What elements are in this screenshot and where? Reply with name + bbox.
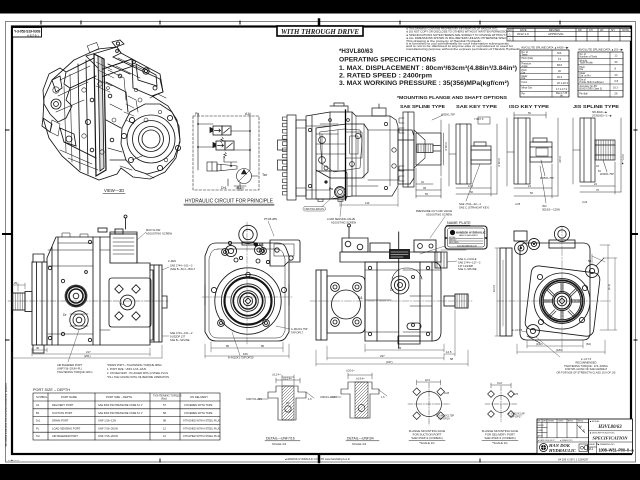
svg-text:PL: PL (36, 426, 40, 430)
svg-text:(184): (184) (556, 348, 563, 352)
svg-text:70: 70 (596, 188, 599, 192)
svg-text:Dr: Dr (63, 313, 67, 317)
svg-text:∅19 8¹⁵: ∅19 8¹⁵ (356, 377, 365, 381)
svg-text:57: 57 (163, 403, 166, 407)
svg-text:OPERATING SPECIFICATIONS: OPERATING SPECIFICATIONS (339, 58, 436, 64)
svg-text:MAX FLOW: MAX FLOW (146, 228, 161, 232)
svg-text:Number of Teeth: Number of Teeth (580, 55, 598, 58)
svg-text:■ DRAWING NO.: ■ DRAWING NO. (598, 443, 615, 446)
svg-text:www.handokhyd.co.kr: www.handokhyd.co.kr (457, 245, 477, 247)
svg-text:(347): (347) (386, 360, 393, 364)
svg-text:∅(∅)—▶: ∅(∅)—▶ (621, 154, 625, 166)
svg-text:Pc: Pc (329, 187, 333, 191)
svg-text:12: 12 (163, 434, 166, 438)
svg-text:2–M20: 2–M20 (168, 259, 176, 263)
svg-text:FOR 5/8–11UNC OF SAE GRADE 8: FOR 5/8–11UNC OF SAE GRADE 8 (565, 367, 607, 371)
svg-text:PT1/8-28N: PT1/8-28N (264, 217, 277, 221)
svg-text:JIS SPLINE TYPE: JIS SPLINE TYPE (573, 104, 619, 109)
svg-text:DRWN: DRWN (538, 425, 544, 427)
svg-text:*FILL THE CASING WITH OIL BEFO: *FILL THE CASING WITH OIL BEFORE OPERATI… (107, 375, 169, 379)
svg-text:8–M12X1.75P DP20: 8–M12X1.75P DP20 (228, 356, 254, 360)
svg-text:B1603-1995 Class 3): B1603-1995 Class 3) (580, 87, 603, 90)
svg-text:COVERED WITH TAPE: COVERED WITH TAPE (184, 411, 213, 415)
svg-text:JIS B1603—1—▶: JIS B1603—1—▶ (592, 114, 613, 117)
svg-text:SAE J744—32—1: SAE J744—32—1 (459, 202, 481, 206)
svg-text:OR FOR M16 OF STRENGTH CLASS 1: OR FOR M16 OF STRENGTH CLASS 10.9 OF JIS (557, 371, 616, 375)
svg-text:17.1-17.3: 17.1-17.3 (556, 87, 568, 91)
svg-text:1008–W31–P00–0–A: 1008–W31–P00–0–A (599, 448, 634, 453)
svg-text:HYDRAULIC: HYDRAULIC (548, 448, 577, 453)
svg-text:1.6: 1.6 (381, 396, 385, 399)
svg-text:SCALE 4/1: SCALE 4/1 (352, 442, 367, 446)
svg-text:12.5: 12.5 (446, 350, 452, 354)
svg-text:HYDRAULIC CIRCUIT FOR PRINCIPL: HYDRAULIC CIRCUIT FOR PRINCIPLE (185, 199, 273, 205)
svg-text:3019/2—C25N: 3019/2—C25N (542, 208, 560, 212)
svg-text:3. MAX WORKING PRESSURE : 35(3: 3. MAX WORKING PRESSURE : 35(356)MPa(kgf… (339, 80, 509, 87)
svg-text:ADJUSTING SCREW: ADJUSTING SCREW (331, 220, 357, 224)
svg-text:AIR BLEEDER PORT: AIR BLEEDER PORT (52, 434, 78, 438)
svg-text:237: 237 (380, 354, 385, 358)
svg-text:12.5: 12.5 (468, 184, 474, 188)
svg-text:2. RATED SPEED : 2400rpm: 2. RATED SPEED : 2400rpm (339, 74, 432, 80)
svg-text:UNF3/4–16UN: UNF3/4–16UN (320, 396, 337, 399)
svg-text:TIGHTENING TORQUE 12Nm: TIGHTENING TORQUE 12Nm (57, 370, 92, 374)
svg-text:H-307-B 1: H-307-B 1 (27, 34, 39, 38)
svg-text:1.6: 1.6 (308, 398, 312, 401)
svg-text:CHKD: CHKD (558, 421, 564, 423)
svg-text:ATTACHED WITH A STEEL PLUG: ATTACHED WITH A STEEL PLUG (183, 435, 220, 438)
svg-text:H3VL80/63 1008-W31-P00-0-A SPE: H3VL80/63 1008-W31-P00-0-A SPECIFICATION… (5, 383, 8, 447)
svg-text:manufacturing purpose without: manufacturing purpose without the expres… (406, 48, 521, 51)
svg-text:48: 48 (423, 186, 426, 190)
svg-text:SAE J744—101—2: SAE J744—101—2 (170, 331, 193, 335)
svg-text:Teeth: Teeth (522, 53, 529, 56)
svg-text:UNF 7/16–20UN: UNF 7/16–20UN (98, 434, 118, 438)
svg-text:NAME PLATE: NAME PLATE (447, 221, 471, 225)
svg-text:SYMBOL: SYMBOL (36, 395, 48, 399)
svg-text:*DRAIN PORT—TIGHTENING TORQUE: *DRAIN PORT—TIGHTENING TORQUE 98Nm (107, 363, 162, 367)
svg-text:93: 93 (398, 346, 402, 350)
svg-text:Pc: Pc (195, 112, 199, 116)
svg-text:*SCALE 1/1: *SCALE 1/1 (419, 441, 435, 445)
svg-text:42: 42 (421, 180, 424, 184)
svg-text:Dia. at Pin: Dia. at Pin (580, 75, 592, 78)
svg-text:(162): (162) (536, 342, 543, 346)
svg-text:DELIVERY PORT: DELIVERY PORT (52, 403, 74, 407)
svg-text:SPECIFICATION: SPECIFICATION (592, 436, 628, 441)
svg-text:SAE 6000 PSI PRESSURE CODE 61: SAE 6000 PSI PRESSURE CODE 61 1" (98, 404, 143, 407)
svg-text:Minor Dia: Minor Dia (522, 87, 533, 90)
svg-text:7.96/7.9: 7.96/7.9 (474, 117, 484, 121)
svg-text:H3VL80/63: H3VL80/63 (597, 425, 622, 430)
svg-text:HANDOK MACHINERY: HANDOK MACHINERY (459, 234, 479, 237)
svg-text:TAP DP17: TAP DP17 (510, 416, 522, 419)
svg-text:Pin Ball: Pin Ball (580, 93, 589, 96)
svg-text:UNF7/16–20N: UNF7/16–20N (246, 398, 262, 401)
svg-text:VIEW—3D: VIEW—3D (104, 188, 124, 193)
svg-text:PORT SIZE – DEPTH: PORT SIZE – DEPTH (33, 388, 70, 392)
svg-text:UNF 1/16–12N: UNF 1/16–12N (98, 419, 116, 423)
svg-text:M8: M8 (259, 243, 264, 247)
svg-text:2–∅17.5: 2–∅17.5 (581, 357, 592, 361)
svg-text:W30X1.75P: W30X1.75P (441, 113, 455, 117)
svg-text:APPROVAL: APPROVAL (548, 32, 564, 36)
svg-text:0.8: 0.8 (615, 79, 619, 83)
svg-text:TAP DP17: TAP DP17 (291, 330, 304, 334)
svg-text:■ DESCRIPTION(TITLE): ■ DESCRIPTION(TITLE) (590, 432, 615, 435)
svg-text:● SCALE 1/2.5: ● SCALE 1/2.5 (560, 439, 573, 442)
svg-text:DR: DR (578, 29, 582, 32)
svg-text:AIR BLEEDER PORT: AIR BLEEDER PORT (57, 363, 82, 367)
svg-text:SAE C–SPLINE: SAE C–SPLINE (458, 267, 477, 271)
svg-text:4–M12X1.75P: 4–M12X1.75P (291, 327, 308, 331)
svg-text:WITH THROUGH DRIVE: WITH THROUGH DRIVE (281, 28, 359, 36)
svg-text:A1: A1 (36, 403, 40, 407)
svg-text:Dr1: Dr1 (221, 186, 227, 190)
svg-text:PRESSURE CUT-OFF VALVE: PRESSURE CUT-OFF VALVE (416, 209, 452, 213)
svg-text:*SCALE 1/1: *SCALE 1/1 (492, 441, 508, 445)
svg-text:103.5: 103.5 (492, 285, 496, 292)
svg-text:Pitch (Flat): Pitch (Flat) (522, 57, 534, 60)
svg-text:●HANDOK HYDRAULIC CO.,LTD www: ●HANDOK HYDRAULIC CO.,LTD www.handokhyd.… (285, 457, 350, 461)
svg-text:24: 24 (594, 182, 597, 186)
svg-text:∅25: ∅25 (513, 392, 519, 396)
svg-text:Tooth Profile: Tooth Profile (580, 62, 594, 65)
svg-text:ISO KEY TYPE: ISO KEY TYPE (509, 104, 549, 109)
svg-text:DRWN: DRWN (548, 421, 554, 423)
svg-text:∅12 4¹⁵: ∅12 4¹⁵ (283, 377, 292, 381)
svg-text:SAE=J518=1 (CODE61): SAE=J518=1 (CODE61) (484, 436, 515, 440)
svg-text:SAE SPLINE TYPE: SAE SPLINE TYPE (400, 104, 445, 109)
svg-text:Dr1: Dr1 (36, 419, 41, 423)
svg-text:A4 209 X 297 | 1 150X297: A4 209 X 297 | 1 150X297 (558, 458, 589, 462)
svg-text:ISO: ISO (542, 204, 547, 208)
svg-text:44: 44 (596, 164, 599, 168)
svg-text:∅20.6⁵⁵: ∅20.6⁵⁵ (346, 369, 355, 373)
svg-text:(Nm): (Nm) (161, 397, 167, 401)
svg-text:(62): (62) (586, 342, 591, 346)
svg-text:45°: 45° (286, 402, 290, 405)
svg-text:A1: A1 (120, 301, 126, 306)
svg-text:56: 56 (470, 190, 473, 194)
svg-text:20.3: 20.3 (557, 75, 563, 79)
svg-text:∅100: ∅100 (558, 156, 562, 163)
svg-text:B1: B1 (36, 411, 40, 415)
svg-text:8/16: 8/16 (557, 63, 563, 67)
svg-text:TIGHTENING TORQUE : 274–333Nm: TIGHTENING TORQUE : 274–333Nm (564, 364, 608, 368)
svg-text:LOAD SENSING VALVE: LOAD SENSING VALVE (327, 217, 355, 221)
svg-text:SH: SH (611, 29, 615, 32)
svg-text:N/S: N/S (557, 51, 562, 55)
svg-text:19.1-: 19.1- (613, 87, 619, 90)
svg-text:42.9: 42.9 (425, 379, 430, 382)
svg-text:ATTACHED WITH A STEEL PLUG: ATTACHED WITH A STEEL PLUG (183, 420, 220, 423)
svg-text:TIGHTENING TORQUE: TIGHTENING TORQUE (153, 394, 182, 398)
svg-text:PORT SIZE – DEPTH: PORT SIZE – DEPTH (106, 395, 132, 399)
svg-text:2. ON DELIVERY : PLUGGED WITH: 2. ON DELIVERY : PLUGGED WITH A STEEL PL… (107, 371, 168, 375)
svg-text:AP: AP (600, 29, 604, 32)
svg-text:ADJUSTING SCREW: ADJUSTING SCREW (426, 212, 452, 216)
svg-text:B1: B1 (358, 295, 364, 300)
svg-text:SUCTION PORT: SUCTION PORT (52, 411, 73, 415)
svg-text:PORT NAME: PORT NAME (61, 395, 77, 399)
svg-text:56: 56 (425, 192, 428, 196)
svg-text:TAP DP19: TAP DP19 (438, 418, 450, 421)
svg-text:ADJUSTING SCREW: ADJUSTING SCREW (146, 231, 172, 235)
svg-text:(261): (261) (84, 354, 91, 358)
svg-text:SAE B—SPLINE: SAE B—SPLINE (170, 338, 190, 342)
svg-text:LOAD SENSING PORT: LOAD SENSING PORT (52, 426, 81, 430)
svg-text:INVOLUTE SPLINE DATA ▲JIS—▶: INVOLUTE SPLINE DATA ▲JIS—▶ (578, 48, 624, 52)
svg-text:16/32DP 13T: 16/32DP 13T (170, 334, 186, 338)
svg-text:COVERED WITH TAPE: COVERED WITH TAPE (184, 403, 213, 407)
svg-text:CH: CH (589, 29, 593, 32)
svg-text:HANDOK HYDRAULIC: HANDOK HYDRAULIC (456, 231, 486, 235)
svg-text:14T 12/24DP: 14T 12/24DP (458, 264, 474, 268)
svg-text:24: 24 (528, 184, 531, 188)
svg-text:SAE 6000 PSI PRESSURE CODE 61: SAE 6000 PSI PRESSURE CODE 61 1" (98, 412, 143, 415)
svg-text:1. PORT SIZE : UNF1 1/16–12UN: 1. PORT SIZE : UNF1 1/16–12UN (107, 367, 146, 371)
svg-text:25: 25 (14, 281, 18, 285)
svg-text:● DATE 2009.10.27: ● DATE 2009.10.27 (538, 439, 555, 442)
svg-text:APVD: APVD (538, 435, 544, 438)
svg-text:143: 143 (365, 201, 370, 205)
svg-text:56: 56 (530, 191, 533, 195)
svg-text:40: 40 (36, 346, 40, 350)
svg-text:80: 80 (261, 344, 265, 348)
svg-text:(UNF7/16–20UN–PL): (UNF7/16–20UN–PL) (57, 366, 82, 370)
svg-text:12: 12 (163, 426, 166, 430)
svg-text:58: 58 (450, 357, 454, 361)
svg-text:Form: Form (522, 81, 528, 84)
svg-text:∅101.6: ∅101.6 (444, 142, 448, 151)
svg-text:DRAIN PORT: DRAIN PORT (52, 419, 69, 423)
svg-text:(171): (171) (607, 284, 611, 290)
svg-text:ATTACHED WITH A STEEL PLUG: ATTACHED WITH A STEEL PLUG (183, 427, 220, 430)
svg-text:2–∅17.5: 2–∅17.5 (512, 328, 523, 332)
svg-text:(4): (4) (560, 95, 563, 98)
svg-text:NOTE: NOTE (622, 29, 629, 32)
svg-text:A1: A1 (245, 112, 249, 116)
svg-text:∅25: ∅25 (515, 202, 521, 206)
svg-text:*MOUNTING FLANGE AND SHAFT OPT: *MOUNTING FLANGE AND SHAFT OPTIONS (397, 95, 507, 100)
svg-text:SAE C–2 HOLE: SAE C–2 HOLE (458, 257, 477, 261)
svg-text:CHKD: CHKD (538, 430, 544, 432)
svg-text:Tar: Tar (262, 173, 268, 177)
svg-text:APVD: APVD (568, 420, 574, 423)
svg-text:ON DELIVERY: ON DELIVERY (190, 395, 208, 399)
svg-text:31.8: 31.8 (497, 382, 502, 385)
svg-text:▪—■—▪—▪: ▪—■—▪—▪ (8, 459, 19, 462)
svg-text:58: 58 (588, 259, 592, 263)
svg-text:SAE J744—127—2: SAE J744—127—2 (458, 260, 481, 264)
svg-text:SCALE 4/1: SCALE 4/1 (272, 442, 287, 446)
svg-text:Tar: Tar (36, 434, 40, 438)
svg-text:20.1-20.3: 20.1-20.3 (557, 81, 569, 85)
svg-text:INVOLUTE SPLINE DATA ▲ANSI—▶: INVOLUTE SPLINE DATA ▲ANSI—▶ (521, 46, 569, 50)
svg-text:W20X1.75P: W20X1.75P (600, 172, 614, 176)
svg-text:UNF 7/16–20UN: UNF 7/16–20UN (98, 426, 118, 430)
svg-text:UNF7/16-20N-PL: UNF7/16-20N-PL (305, 207, 326, 211)
svg-text:Profile Shift Coefficient: Profile Shift Coefficient (580, 81, 604, 84)
svg-text:SAE=J518=2 (CODE61): SAE=J518=2 (CODE61) (411, 436, 442, 440)
svg-text:■ MODEL: ■ MODEL (590, 420, 600, 423)
svg-text:∅12.4⁵⁵: ∅12.4⁵⁵ (272, 373, 281, 377)
svg-text:REVD: REVD (578, 421, 584, 423)
svg-text:80: 80 (226, 344, 230, 348)
svg-text:50: 50 (528, 111, 531, 115)
svg-text:∅28: ∅28 (444, 391, 450, 395)
svg-text:RECOMMENDED: RECOMMENDED (576, 360, 597, 364)
svg-text:Angle: Angle (522, 65, 529, 68)
svg-text:2012.1.9: 2012.1.9 (517, 32, 529, 36)
svg-text:∅101.6: ∅101.6 (497, 158, 501, 167)
svg-text:MFG.DATE: MFG.DATE (449, 241, 459, 244)
svg-text:A1: A1 (589, 447, 593, 451)
svg-text:DETAIL—UNF7/16: DETAIL—UNF7/16 (266, 437, 295, 441)
svg-text:SAE KEY TYPE: SAE KEY TYPE (456, 104, 497, 109)
svg-text:∅20: ∅20 (582, 200, 588, 204)
svg-text:*H3VL80/63: *H3VL80/63 (339, 49, 374, 55)
svg-text:SAE C (STRAIGHT KEY): SAE C (STRAIGHT KEY) (459, 206, 489, 210)
svg-text:(SAE B—B) 2—BOLT: (SAE B—B) 2—BOLT (170, 267, 195, 271)
svg-text:1. MAX. DISPLACEMENT : 80cm³/6: 1. MAX. DISPLACEMENT : 80cm³/63cm³(4.88i… (339, 65, 517, 72)
svg-text:98: 98 (163, 419, 166, 423)
svg-text:DETAIL—UNF3/4: DETAIL—UNF3/4 (347, 437, 374, 441)
svg-text:58: 58 (163, 411, 166, 415)
svg-text:Y-3-052-S19-0303: Y-3-052-S19-0303 (14, 30, 40, 34)
